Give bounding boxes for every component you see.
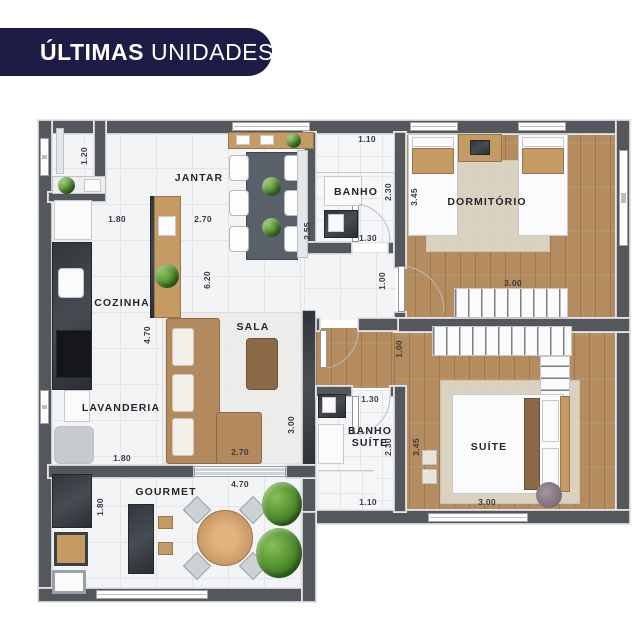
dimension-label: 1.30	[361, 394, 379, 404]
dimension-label: 3.00	[286, 416, 296, 434]
dimension-label: 3.45	[411, 438, 421, 456]
dimension-label: 2.30	[383, 438, 393, 456]
door-swing-arcs	[0, 0, 636, 636]
floorplan-canvas: ÚLTIMAS UNIDADES	[0, 0, 636, 636]
room-label-banho: BANHO	[334, 186, 378, 198]
dimension-label: 3.00	[504, 278, 522, 288]
dimension-label: 1.30	[359, 233, 377, 243]
room-label-dormitorio: DORMITÓRIO	[447, 196, 526, 208]
dimension-label: 3.00	[478, 497, 496, 507]
dimension-label: 6.20	[202, 271, 212, 289]
dimension-label: 2.70	[194, 214, 212, 224]
dimension-label: 2.30	[383, 183, 393, 201]
room-label-banho-suite-line1: BANHO	[348, 425, 392, 437]
dimension-label: 1.80	[113, 453, 131, 463]
room-label-sala: SALA	[237, 321, 270, 333]
room-label-suite: SUÍTE	[471, 441, 507, 453]
room-label-gourmet: GOURMET	[135, 486, 196, 498]
dimension-label: 2.55	[302, 222, 312, 240]
dimension-label: 3.45	[409, 188, 419, 206]
dimension-label: 4.70	[142, 326, 152, 344]
room-label-lavanderia: LAVANDERIA	[82, 402, 160, 414]
dimension-label: 1.00	[394, 340, 404, 358]
dimension-label: 4.70	[231, 479, 249, 489]
dimension-label: 2.70	[231, 447, 249, 457]
dimension-label: 1.10	[358, 134, 376, 144]
dimension-label: 1.80	[95, 498, 105, 516]
room-label-jantar: JANTAR	[175, 172, 223, 184]
room-label-cozinha: COZINHA	[94, 297, 150, 309]
dimension-label: 1.10	[359, 497, 377, 507]
dimension-label: 1.20	[79, 147, 89, 165]
dimension-label: 1.00	[377, 272, 387, 290]
dimension-label: 1.80	[108, 214, 126, 224]
